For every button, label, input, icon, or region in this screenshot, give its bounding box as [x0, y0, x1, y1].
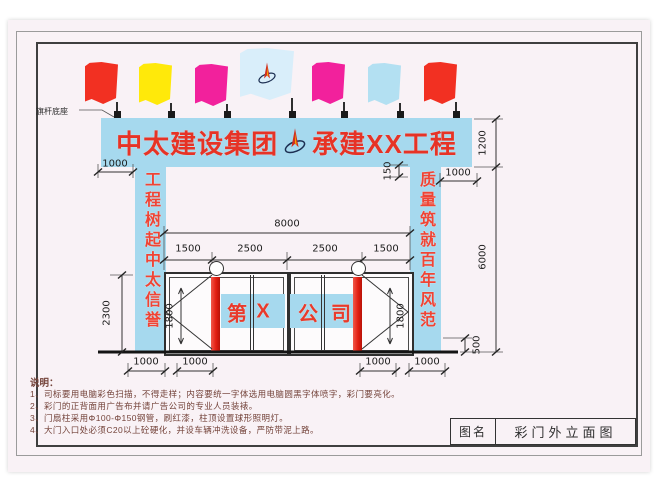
dim-footing: 500	[472, 335, 483, 354]
flag-company-logo-icon	[240, 48, 294, 100]
left-pillar: 工程树起中太信誉	[135, 167, 166, 353]
note-item: 4、大门入口处必须C20以上砼硬化，并设车辆冲洗设备，严防带泥上路。	[30, 424, 319, 436]
gate-letter: 公	[298, 298, 318, 327]
right-pillar-slogan: 质量筑就百年风范	[410, 171, 441, 331]
gate-banner: 中太建设集团 承建XX工程	[101, 118, 472, 167]
flag-red-icon	[424, 62, 457, 104]
gate-post-left	[211, 277, 220, 352]
dim-segment: 2500	[312, 244, 337, 255]
left-pillar-slogan: 工程树起中太信誉	[135, 171, 166, 331]
dim-door-height-left: 1800	[165, 303, 176, 328]
notes-heading: 说明：	[30, 375, 59, 389]
dim-door-height-right: 1800	[396, 303, 407, 328]
zhongtai-logo-icon	[283, 127, 307, 158]
title-block-label: 图名	[451, 419, 496, 444]
drawing-title: 彩门外立面图	[496, 419, 635, 444]
dim-segment: 1500	[175, 244, 200, 255]
dim-overall-width: 8000	[274, 219, 299, 230]
dim-banner-height: 1200	[478, 130, 489, 155]
zhongtai-logo-icon	[257, 61, 277, 88]
flag-base-label: 旗杆底座	[36, 106, 68, 117]
dim-bottom: 1000	[365, 357, 390, 368]
gate-letter: 第	[227, 298, 247, 327]
gate-letter: X	[256, 301, 269, 324]
flag-yellow-icon	[139, 63, 172, 105]
note-item: 2、彩门的正背面用广告布并请广告公司的专业人员装裱。	[30, 400, 258, 412]
gate-letter: 司	[331, 298, 351, 327]
dim-top-left: 1000	[102, 159, 127, 170]
note-item: 3、门扇柱采用Φ100-Φ150钢管，刷红漆，柱顶设置球形照明灯。	[30, 412, 288, 424]
dim-bottom: 1000	[414, 357, 439, 368]
dim-top-right: 1000	[445, 168, 470, 179]
gate-post-right	[353, 277, 362, 352]
dim-segment: 2500	[237, 244, 262, 255]
banner-text-left: 中太建设集团	[116, 124, 278, 161]
dim-bottom: 1000	[182, 357, 207, 368]
flag-light-blue-icon	[368, 63, 401, 105]
ball-lamp-icon	[209, 261, 224, 276]
flag-magenta-icon	[195, 64, 228, 106]
drawing-page: 旗杆底座 中太建设集团 承建XX工程 工程树起中太信誉 质量筑就百年风范 第 X…	[0, 0, 658, 493]
title-block: 图名 彩门外立面图	[450, 418, 636, 445]
dim-segment: 1500	[373, 244, 398, 255]
note-item: 1、司标要用电脑彩色扫描，不得走样；内容要统一字体选用电脑圆黑字体喷字，彩门要亮…	[30, 388, 400, 400]
ball-lamp-icon	[351, 261, 366, 276]
banner-text-right: 承建XX工程	[312, 124, 457, 161]
right-pillar: 质量筑就百年风范	[410, 167, 441, 353]
dim-banner-step: 150	[383, 161, 394, 180]
dim-pillar-height: 6000	[478, 244, 489, 269]
flag-magenta-icon	[312, 62, 345, 104]
dim-bottom: 1000	[133, 357, 158, 368]
flag-red-icon	[85, 62, 118, 104]
dim-gate-height: 2300	[102, 300, 113, 325]
